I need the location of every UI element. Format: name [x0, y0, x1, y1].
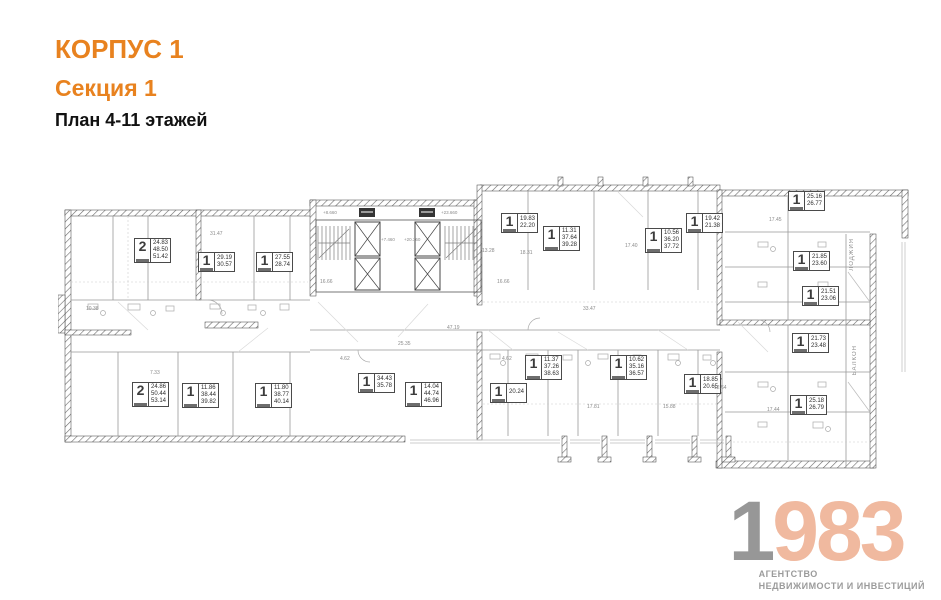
apartment-label-strip [686, 390, 699, 393]
apartment-areas: 14.0444.7446.96 [422, 383, 441, 406]
apartment-areas: 18.8520.65 [701, 375, 720, 393]
apartment-label: 111.3137.6439.28 [543, 226, 580, 251]
apartment-label: 121.5123.06 [802, 286, 839, 306]
apartment-label-strip [647, 249, 660, 252]
apartment-label: 224.8348.5051.42 [134, 238, 171, 263]
logo-tagline-line2: НЕДВИЖИМОСТИ И ИНВЕСТИЦИЙ [759, 580, 925, 592]
apartment-rooms-count: 1 [685, 375, 701, 393]
apartment-label-strip [407, 403, 420, 406]
apartment-rooms-count: 1 [791, 396, 807, 414]
apartment-areas: 25.1626.77 [805, 192, 824, 210]
apartment-rooms-count: 1 [803, 287, 819, 305]
apartment-label: 121.7323.48 [792, 333, 829, 353]
agency-logo: 1983 АГЕНТСТВО НЕДВИЖИМОСТИ И ИНВЕСТИЦИЙ [729, 497, 925, 592]
apartment-label-strip [200, 268, 213, 271]
apartment-label-strip [258, 268, 271, 271]
apartment-areas: 25.1826.79 [807, 396, 826, 414]
apartment-rooms-count: 1 [256, 384, 272, 407]
apartment-rooms-count: 1 [793, 334, 809, 352]
apartment-rooms-count: 1 [794, 252, 810, 270]
apartment-rooms-count: 2 [135, 239, 151, 262]
apartment-rooms-count: 1 [183, 384, 199, 407]
building-title: КОРПУС 1 [55, 36, 207, 62]
apartment-label-strip [492, 399, 505, 402]
staircase-left [318, 226, 350, 260]
apartment-label-strip [360, 389, 373, 392]
apartment-label: 119.8322.20 [501, 213, 538, 233]
apartment-areas: 34.4335.78 [375, 374, 394, 392]
apartment-rooms-count: 1 [199, 253, 215, 271]
apartment-label: 110.5636.2037.72 [645, 228, 682, 253]
apartment-label: 125.1826.79 [790, 395, 827, 415]
apartment-label: 119.4221.38 [686, 213, 723, 233]
apartment-areas: 10.6235.1636.57 [627, 356, 646, 379]
apartment-rooms-count: 1 [526, 356, 542, 379]
apartment-label: 111.8638.4439.82 [182, 383, 219, 408]
apartment-label-strip [136, 259, 149, 262]
apartment-areas: 21.8523.60 [810, 252, 829, 270]
plan-subtitle: План 4-11 этажей [55, 111, 207, 129]
apartment-rooms-count: 1 [544, 227, 560, 250]
apartment-label: 129.1930.57 [198, 252, 235, 272]
apartment-label: 118.8520.65 [684, 374, 721, 394]
apartment-label: 224.8650.4453.14 [132, 382, 169, 407]
logo-year-1983: 1983 [729, 497, 925, 566]
elevator-shafts [355, 222, 440, 290]
window-lines [410, 242, 905, 443]
apartment-label-strip [134, 403, 147, 406]
apartment-label: 127.5528.74 [256, 252, 293, 272]
apartment-rooms-count: 1 [646, 229, 662, 252]
apartment-label-strip [792, 411, 805, 414]
apartment-areas: 20.24 [507, 384, 526, 402]
apartment-label: 111.8038.7740.14 [255, 383, 292, 408]
apartment-areas: 11.3737.2638.63 [542, 356, 561, 379]
apartment-areas: 24.8650.4453.14 [149, 383, 168, 406]
apartment-label-strip [545, 247, 558, 250]
apartment-label-strip [503, 229, 516, 232]
apartment-areas: 24.8348.5051.42 [151, 239, 170, 262]
apartment-label-strip [257, 404, 270, 407]
apartment-areas: 11.8038.7740.14 [272, 384, 291, 407]
apartment-areas: 11.8638.4439.82 [199, 384, 218, 407]
floor-plan-page: { "header": { "building": "КОРПУС 1", "s… [0, 0, 941, 600]
floor-plan-drawing [58, 172, 940, 472]
title-block: КОРПУС 1 Секция 1 План 4-11 этажей [55, 36, 207, 129]
apartment-areas: 10.5636.2037.72 [662, 229, 681, 252]
apartment-label-strip [790, 207, 803, 210]
apartment-label: 134.4335.78 [358, 373, 395, 393]
apartment-label: 110.6235.1636.57 [610, 355, 647, 380]
dimension-chains [71, 216, 868, 442]
apartment-label: 114.0444.7446.96 [405, 382, 442, 407]
apartment-label: 120.24 [490, 383, 527, 403]
apartment-label-strip [184, 404, 197, 407]
apartment-label-strip [794, 349, 807, 352]
apartment-areas: 19.8322.20 [518, 214, 537, 232]
apartment-rooms-count: 2 [133, 383, 149, 406]
elevator-machine-icons [359, 208, 435, 217]
apartment-areas: 11.3137.6439.28 [560, 227, 579, 250]
logo-year-salmon-digits: 983 [772, 484, 903, 578]
apartment-label-strip [688, 229, 701, 232]
apartment-rooms-count: 1 [789, 192, 805, 210]
door-swings [118, 192, 770, 362]
apartment-areas: 19.4221.38 [703, 214, 722, 232]
logo-year-gray-digit: 1 [729, 484, 773, 578]
apartment-label-strip [527, 376, 540, 379]
partition-walls [71, 191, 870, 468]
apartment-rooms-count: 1 [687, 214, 703, 232]
outer-walls [58, 177, 908, 468]
apartment-rooms-count: 1 [491, 384, 507, 402]
apartment-label: 111.3737.2638.63 [525, 355, 562, 380]
apartment-label: 125.1626.77 [788, 191, 825, 211]
apartment-label: 121.8523.60 [793, 251, 830, 271]
apartment-areas: 21.5123.06 [819, 287, 838, 305]
section-title: Секция 1 [55, 77, 207, 100]
apartment-label-strip [804, 302, 817, 305]
apartment-label-strip [795, 267, 808, 270]
apartment-areas: 21.7323.48 [809, 334, 828, 352]
apartment-areas: 27.5528.74 [273, 253, 292, 271]
apartment-rooms-count: 1 [611, 356, 627, 379]
apartment-rooms-count: 1 [257, 253, 273, 271]
apartment-rooms-count: 1 [359, 374, 375, 392]
apartment-label-strip [612, 376, 625, 379]
apartment-areas: 29.1930.57 [215, 253, 234, 271]
apartment-rooms-count: 1 [406, 383, 422, 406]
staircase-right [445, 226, 477, 260]
apartment-rooms-count: 1 [502, 214, 518, 232]
